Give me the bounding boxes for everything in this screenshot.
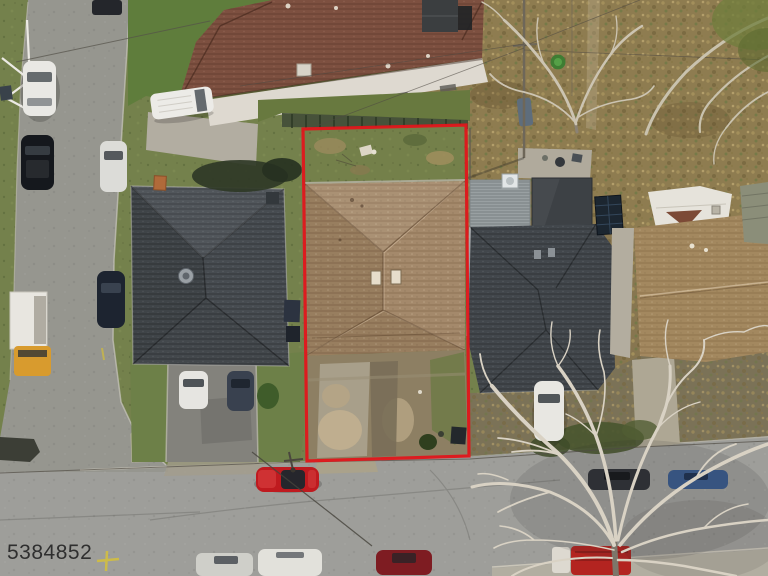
car-darkred-bottom [376, 550, 432, 575]
subject-backyard [303, 125, 466, 184]
car-white-roadside [100, 141, 127, 192]
truck-yellow-flatbed [10, 292, 51, 376]
subject-front-yard [305, 350, 469, 461]
side-driveway [610, 228, 634, 358]
subject-house-roof [305, 181, 465, 356]
suv-dark-driveway [227, 371, 254, 411]
car-top-edge [92, 0, 122, 15]
chimney [297, 64, 311, 76]
scene-canvas [0, 0, 768, 576]
roof-vent [371, 271, 381, 285]
roof-vent [690, 244, 695, 249]
chimney [712, 206, 720, 214]
left-house [130, 158, 304, 462]
front-bush [419, 434, 437, 450]
aerial-property-photo: 5384852 [0, 0, 768, 576]
car-darkblue-roadside [97, 271, 125, 328]
car-black-left-road [21, 135, 54, 190]
side-bins [284, 300, 301, 323]
roof-vent [391, 270, 401, 284]
front-bush [257, 383, 279, 409]
car-white-bottom [258, 549, 322, 576]
trash-bin [450, 427, 466, 445]
patio-walk [518, 148, 592, 180]
car-white-left-road [20, 61, 60, 122]
car-silver-bottom [196, 553, 253, 576]
orange-chimney [154, 176, 167, 191]
subject-property [284, 125, 469, 461]
roof-vent [548, 248, 555, 257]
green-gray-roof [740, 182, 768, 244]
far-right-house [595, 182, 768, 362]
vent-box [266, 192, 279, 204]
dark-car-by-shed [458, 6, 472, 30]
roof-vent [534, 250, 541, 259]
watermark-photo-id: 5384852 [7, 541, 92, 565]
car-white-driveway [179, 371, 208, 409]
